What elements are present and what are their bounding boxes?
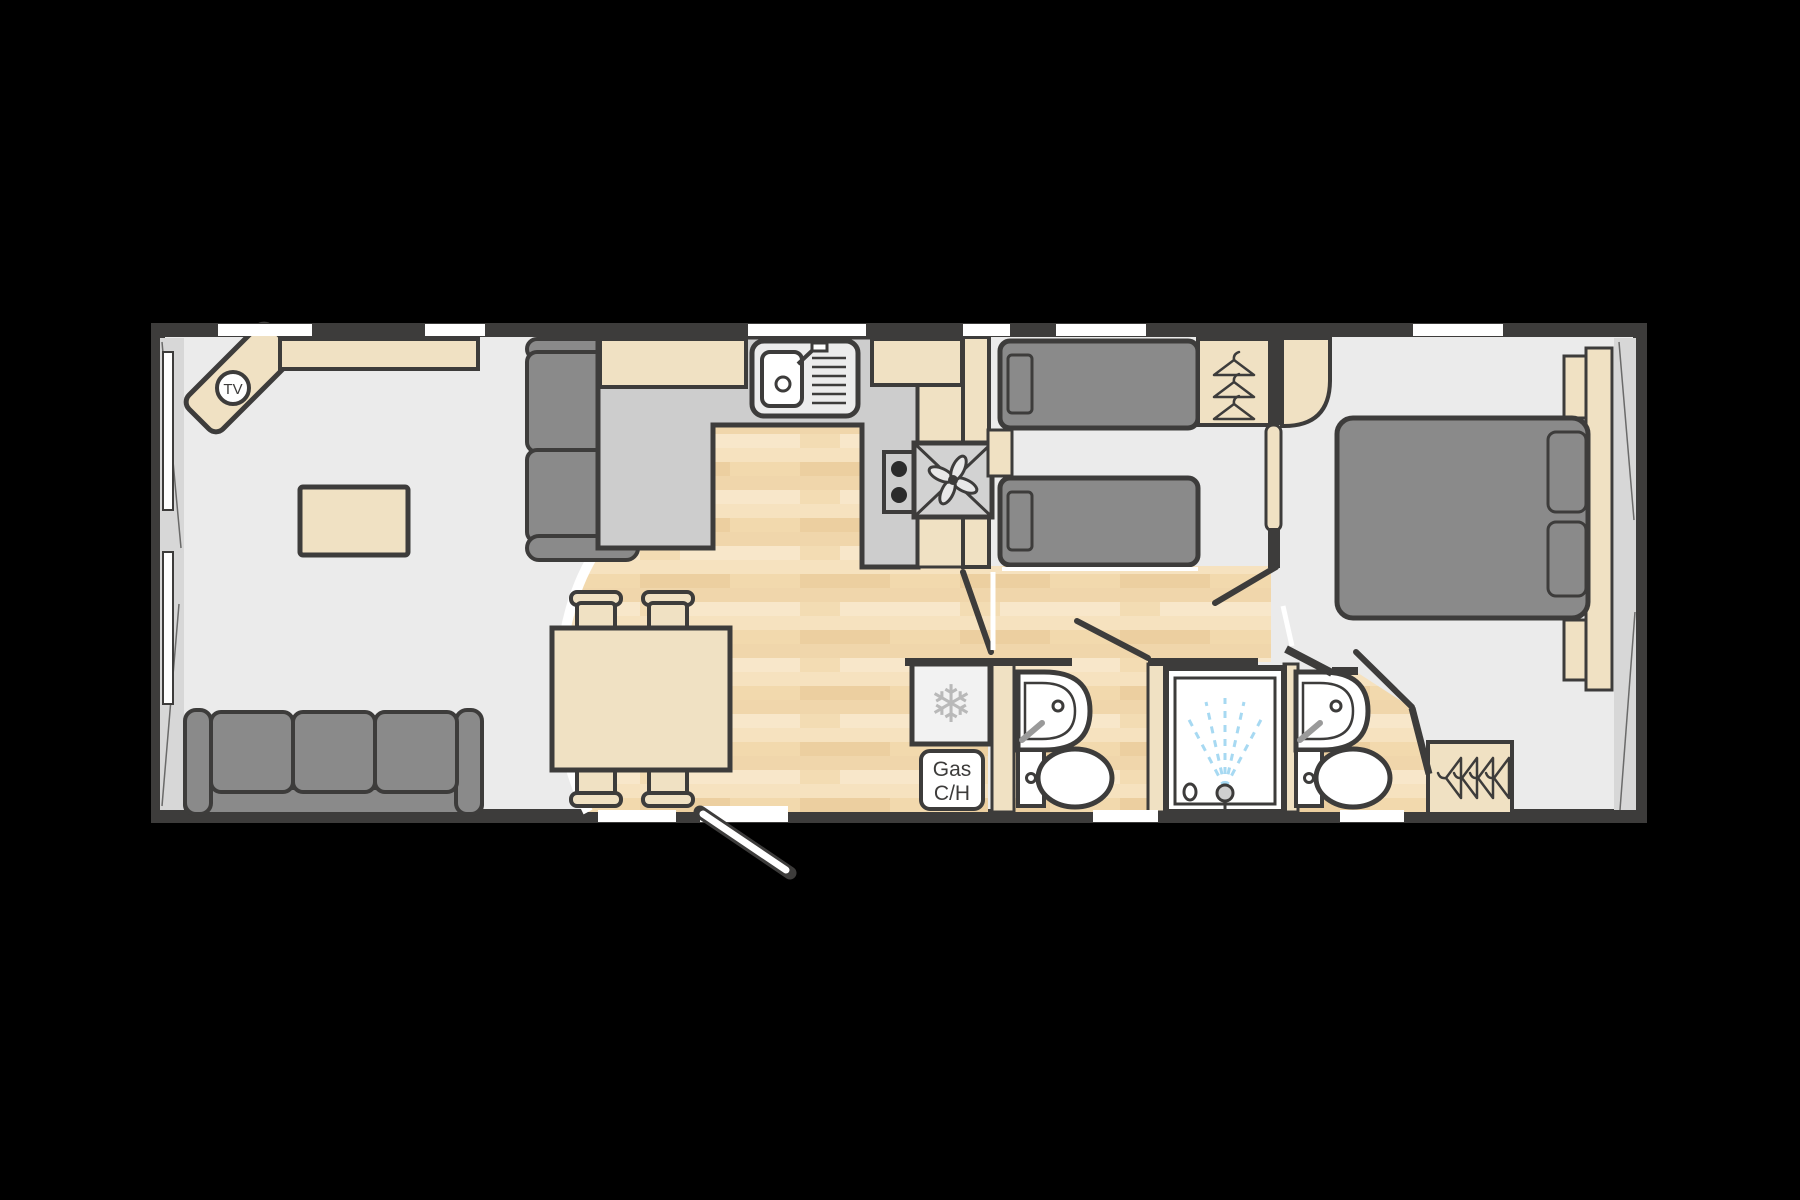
shower-enclosure: [1166, 668, 1284, 812]
wc1-basin: [1018, 672, 1090, 750]
master-corner-cabinet: [1282, 338, 1330, 426]
sink-unit: [752, 341, 858, 416]
ensuite-basin: [1296, 672, 1368, 750]
window: [425, 324, 485, 336]
right-end-wall: [1614, 338, 1636, 810]
dining-table: [552, 628, 730, 770]
entrance-door: [700, 806, 790, 873]
floorplan-svg: TV: [0, 0, 1800, 1200]
window: [1056, 324, 1146, 336]
top-shelf: [280, 339, 478, 369]
window: [218, 324, 312, 336]
kitchen-cabinet-right: [872, 339, 962, 385]
window: [598, 810, 676, 822]
left-window-2: [163, 552, 173, 704]
kitchen-cabinet-left: [600, 339, 746, 387]
window: [1413, 324, 1503, 336]
master-door-panel: [1266, 425, 1281, 531]
window: [963, 324, 1010, 336]
shower-drain: [1184, 784, 1196, 800]
gas-ch-locker: Gas C/H: [921, 751, 983, 809]
chair: [643, 793, 693, 806]
tv-label: TV: [223, 381, 242, 398]
gas-label-line2: C/H: [934, 782, 970, 805]
sofa: [185, 710, 482, 814]
window: [748, 324, 866, 336]
wc1-wall-strip: [992, 664, 1014, 812]
wc1-toilet: [1018, 749, 1112, 807]
twin-nightstand: [988, 430, 1012, 476]
shower-head-icon: [1217, 785, 1233, 801]
nightstand-top: [1564, 356, 1586, 418]
left-end-wall: [160, 338, 184, 810]
snowflake-icon: ❄: [929, 676, 973, 734]
master-wardrobe: [1428, 742, 1512, 814]
ensuite-toilet: [1296, 749, 1390, 807]
chair: [571, 793, 621, 806]
nightstand-bottom: [1564, 620, 1586, 680]
gas-label-line1: Gas: [933, 758, 972, 781]
window: [1093, 810, 1158, 822]
sink-drain: [776, 377, 790, 391]
left-window-1: [163, 352, 173, 510]
coffee-table: [300, 487, 408, 555]
window: [1340, 810, 1404, 822]
master-bed: [1337, 418, 1588, 618]
hob-unit: [884, 443, 992, 517]
floorplan-page: TV: [0, 0, 1800, 1200]
